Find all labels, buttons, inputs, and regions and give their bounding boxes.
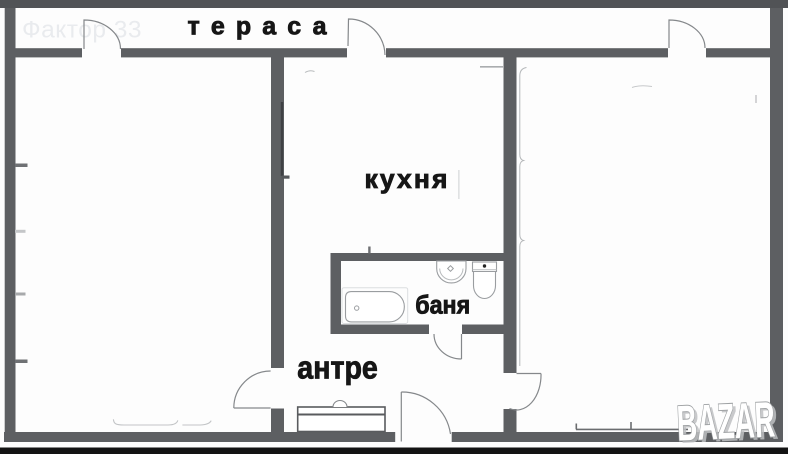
svg-text:баня: баня xyxy=(415,290,470,320)
svg-text:BAZAR: BAZAR xyxy=(676,391,776,451)
svg-text:антре: антре xyxy=(297,350,378,386)
svg-text:кухня: кухня xyxy=(365,164,448,194)
svg-text:Фактор 33: Фактор 33 xyxy=(22,17,142,44)
